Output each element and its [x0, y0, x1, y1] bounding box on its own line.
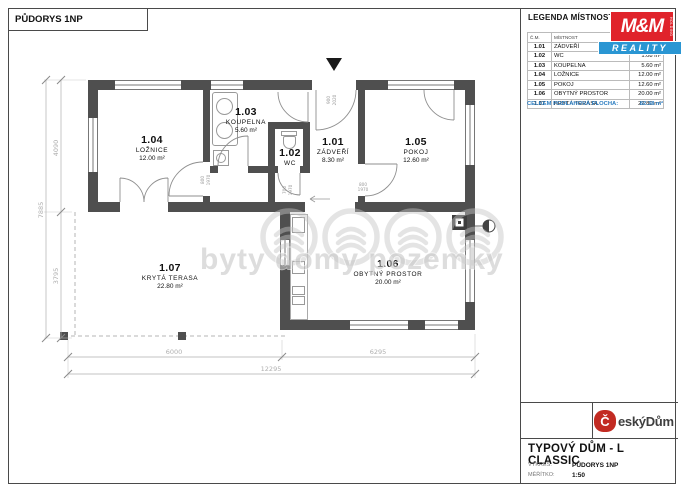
wall-segment	[358, 196, 365, 212]
title-block-line	[592, 402, 593, 438]
title-block-row-vykres: VÝKRES: PŮDORYS 1NP	[528, 462, 678, 468]
legend-row: 1.03KOUPELNA5.60 m²	[528, 61, 664, 71]
drawing-title-box: PŮDORYS 1NP	[8, 8, 148, 31]
room-label-loznice: 1.04 LOŽNICE 12.00 m²	[112, 134, 192, 163]
panel-divider	[520, 8, 521, 484]
room-label-koupelna: 1.03 KOUPELNA 5.60 m²	[216, 106, 276, 135]
washing-machine-drum	[216, 153, 226, 163]
window	[465, 105, 475, 165]
window	[211, 80, 243, 90]
wall-segment	[203, 80, 210, 162]
wall-segment	[88, 202, 120, 212]
cesky-dum-logo-text: eskýDům	[618, 414, 674, 429]
mm-reality-logo: M&M	[611, 12, 673, 42]
vykres-label: VÝKRES:	[528, 462, 552, 468]
legend-title: LEGENDA MÍSTNOSTÍ	[528, 13, 616, 22]
drawing-sheet: PŮDORYS 1NP	[0, 0, 686, 493]
title-block-row-meritko: MĚŘÍTKO: 1:50	[528, 472, 678, 478]
title-block-line	[520, 402, 678, 403]
legend-total-value: 82.38 m²	[640, 101, 663, 107]
wall-segment	[280, 320, 350, 330]
legend-row: 1.05POKOJ12.60 m²	[528, 80, 664, 90]
wall-segment	[168, 202, 305, 212]
window	[388, 80, 454, 90]
cesky-dum-logo: Č eskýDům	[594, 406, 678, 436]
legend-row: 1.06OBYTNÝ PROSTOR20.00 m²	[528, 90, 664, 100]
meritko-value: 1:50	[572, 472, 585, 479]
legend-row: 1.04LOŽNICE12.00 m²	[528, 71, 664, 81]
mm-reality-holding-text: HOLDING	[666, 13, 673, 41]
cesky-dum-house-icon: Č	[594, 410, 616, 432]
wall-segment	[243, 80, 312, 90]
wall-segment	[454, 80, 475, 90]
window	[350, 320, 408, 330]
wall-segment	[203, 196, 210, 212]
kitchen-sink	[292, 286, 305, 295]
vykres-value: PŮDORYS 1NP	[572, 462, 618, 469]
wall-segment	[465, 90, 475, 105]
window	[425, 320, 458, 330]
wall-segment	[280, 212, 290, 240]
room-label-pokoj: 1.05 POKOJ 12.60 m²	[380, 136, 452, 165]
wall-segment	[210, 166, 218, 173]
kitchen-appliance	[292, 217, 305, 233]
window	[115, 80, 181, 90]
room-label-zadveri: 1.01 ZÁDVEŘÍ 8.30 m²	[303, 136, 363, 165]
kitchen-sink	[292, 296, 305, 305]
wall-segment	[458, 320, 475, 330]
mm-reality-banner: REALITY	[599, 42, 681, 54]
legend-total-row: 82.38 m² CELKEM PODLAHOVÁ PLOCHA:	[527, 101, 663, 107]
wall-segment	[248, 166, 270, 173]
wall-segment	[88, 80, 115, 90]
legend-total-label: CELKEM PODLAHOVÁ PLOCHA:	[527, 101, 618, 107]
wall-segment	[355, 202, 475, 212]
meritko-label: MĚŘÍTKO:	[528, 472, 555, 478]
wall-segment	[408, 320, 425, 330]
wall-segment	[88, 90, 98, 118]
window	[88, 118, 98, 172]
title-block-line	[520, 438, 678, 439]
legend-header-cm: Č.M.	[528, 33, 552, 43]
watermark-text: byty domy pozemky	[200, 243, 500, 277]
